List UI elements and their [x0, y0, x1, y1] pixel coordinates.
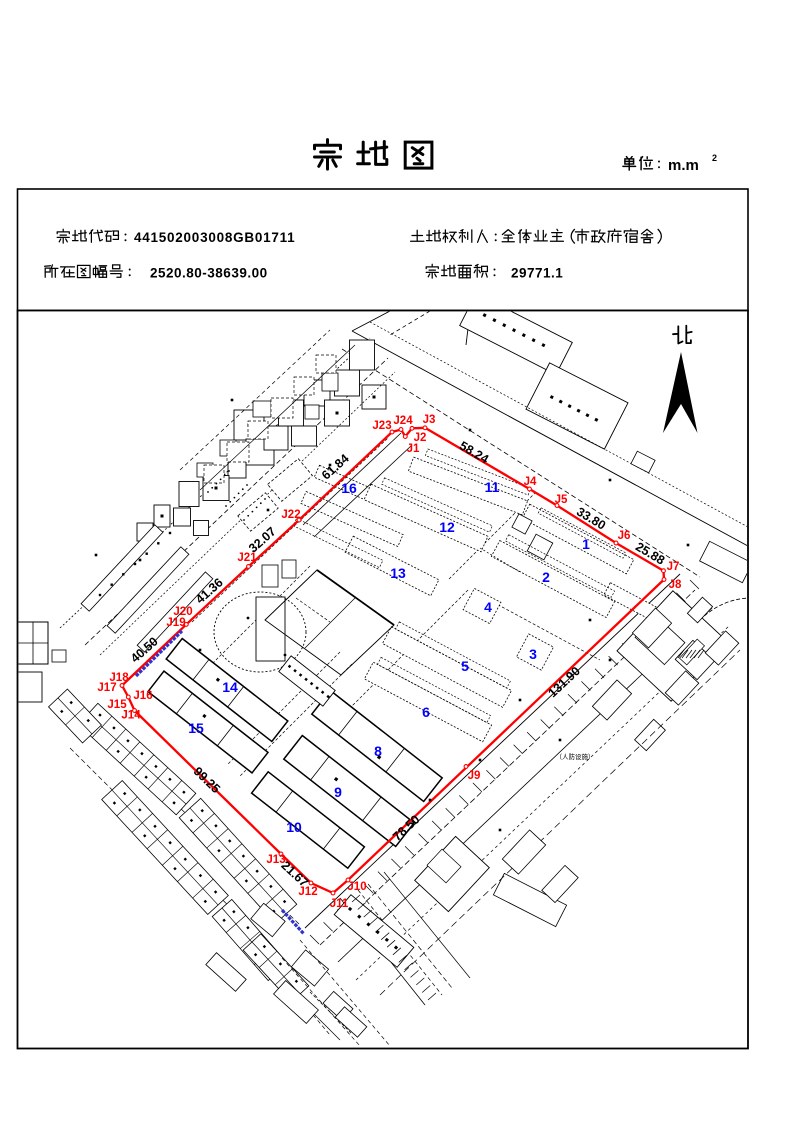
svg-text:J9: J9	[468, 770, 481, 782]
svg-text:2: 2	[542, 569, 550, 585]
svg-text:J1: J1	[407, 443, 420, 455]
svg-text:9: 9	[334, 784, 342, 800]
svg-text:J18: J18	[109, 672, 129, 684]
svg-text:12: 12	[439, 519, 455, 535]
svg-text:J24: J24	[393, 415, 413, 427]
svg-text:J20: J20	[173, 606, 192, 618]
svg-text:J4: J4	[524, 476, 537, 488]
svg-text:15: 15	[188, 720, 204, 736]
svg-text:5: 5	[461, 658, 469, 674]
svg-text:J5: J5	[555, 494, 568, 506]
svg-text:J14: J14	[121, 710, 141, 722]
svg-text:14: 14	[222, 679, 238, 695]
svg-text:J8: J8	[669, 579, 682, 591]
svg-text:J22: J22	[281, 509, 300, 521]
svg-text:1: 1	[582, 536, 590, 552]
svg-text:11: 11	[485, 479, 500, 495]
svg-text:13: 13	[390, 565, 406, 581]
svg-text:J16: J16	[133, 690, 152, 702]
svg-text:J6: J6	[618, 530, 631, 542]
svg-text:J3: J3	[423, 414, 436, 426]
svg-text:441502003008GB01711: 441502003008GB01711	[134, 230, 295, 245]
svg-text:2520.80-38639.00: 2520.80-38639.00	[150, 266, 268, 281]
svg-text:6: 6	[422, 704, 430, 720]
svg-text:16: 16	[341, 480, 357, 496]
svg-text:8: 8	[374, 743, 382, 759]
svg-text:J15: J15	[107, 699, 127, 711]
svg-text:J19: J19	[166, 617, 185, 629]
svg-text:m.m: m.m	[668, 157, 699, 174]
svg-text:（人防设施）: （人防设施）	[556, 752, 595, 761]
svg-text:10: 10	[286, 819, 302, 835]
svg-text:J7: J7	[667, 561, 680, 573]
svg-text:J11: J11	[330, 898, 349, 910]
svg-text:29771.1: 29771.1	[511, 266, 563, 281]
svg-text:J23: J23	[372, 420, 391, 432]
svg-text:2: 2	[712, 153, 717, 163]
svg-text:J10: J10	[347, 881, 366, 893]
svg-text:3: 3	[529, 646, 537, 662]
svg-text:4: 4	[484, 599, 492, 615]
